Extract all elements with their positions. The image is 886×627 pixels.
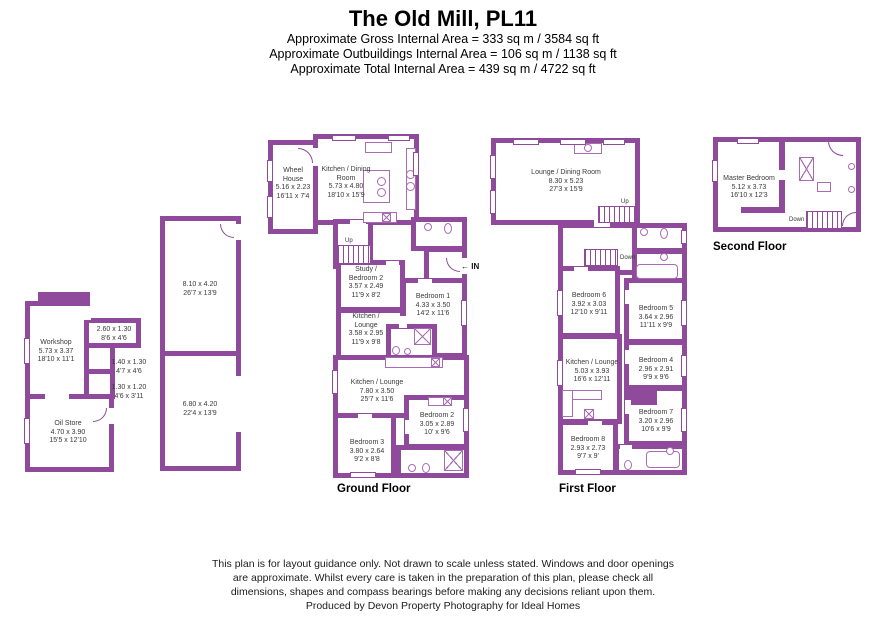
basin-fixture [848,186,855,193]
room-workshop-label: Workshop 5.73 x 3.37 18'10 x 11'1 [30,339,82,365]
outbuildings-area-line: Approximate Outbuildings Internal Area =… [0,47,886,61]
room-bedroom3-label: Bedroom 3 3.80 x 2.64 9'2 x 8'8 [339,439,395,465]
window [490,190,496,214]
stairs-up-label: Up [345,238,353,244]
in-arrow-icon: ← [461,262,469,271]
window [737,138,759,144]
hob-ring-fixture [406,182,415,191]
partition-wall [741,207,785,213]
door-gap [625,290,631,304]
second-floor-title: Second Floor [713,241,786,253]
door-gap [588,421,602,427]
room-oil-store-label: Oil Store 4.70 x 3.90 15'5 x 12'10 [39,420,97,446]
disclaimer-line-2: are approximate. Whilst every care is ta… [0,572,886,584]
window [603,139,625,145]
counter-fixture [562,390,573,417]
room-bedroom1-label: Bedroom 1 4.33 x 3.50 14'2 x 11'6 [405,293,461,319]
credit-line: Produced by Devon Property Photography f… [0,600,886,612]
door-gap [574,267,588,273]
door-gap [107,408,114,424]
window [560,139,586,145]
hob-ring-fixture [377,188,386,197]
door-gap [358,414,372,420]
door-gap [313,148,320,166]
ground-floor-title: Ground Floor [337,483,410,495]
window [681,230,687,244]
ground-wc [411,217,467,251]
stairs-up-ground [337,245,371,264]
room-store-a-label: 2.60 x 1.30 8'6 x 4'6 [87,326,141,343]
room-barn-lower-label: 6.80 x 4.20 22'4 x 13'9 [170,401,230,418]
room-kitchen-lounge-small-label: Kitchen / Lounge 3.58 x 2.95 11'9 x 9'8 [343,313,389,347]
stairs-down-label: Down [789,217,804,223]
window [461,300,467,326]
room-kitchen-dining-label: Kitchen / Dining Room 5.73 x 4.80 18'10 … [317,166,375,200]
toilet-fixture [392,346,400,355]
room-store-c-label: 1.30 x 1.20 4'6 x 3'11 [104,384,154,401]
room-bedroom4-label: Bedroom 4 2.96 x 2.91 9'9 x 9'6 [628,357,684,383]
window [413,152,419,176]
toilet-fixture [624,460,632,470]
shower-fixture [414,328,431,345]
floorplan-page: The Old Mill, PL11 Approximate Gross Int… [0,0,886,627]
sink-fixture [584,409,594,419]
basin-fixture [640,228,648,236]
basin-fixture [660,253,668,261]
shower-fixture [444,450,463,471]
hob-ring-fixture [377,177,386,186]
basin-fixture [408,464,416,472]
sink-fixture [443,397,452,406]
sink-fixture [382,213,391,222]
basin-fixture [424,223,432,231]
sink-fixture [431,358,440,367]
room-kitchen-lounge-large-label: Kitchen / Lounge 7.80 x 3.50 25'7 x 11'6 [339,379,415,405]
toilet-fixture [422,463,430,473]
stairs-down-label: Down [620,255,635,261]
door-gap [418,279,432,285]
disclaimer-line-3: dimensions, shapes and compass bearings … [0,586,886,598]
door-gap [45,394,69,401]
sink-unit-fixture [365,142,392,153]
page-title: The Old Mill, PL11 [0,6,886,32]
disclaimer-line-1: This plan is for layout guidance only. N… [0,558,886,570]
stove-ring-fixture [584,144,592,152]
window [575,469,601,475]
room-master-bedroom-label: Master Bedroom 5.12 x 3.73 16'10 x 12'3 [714,175,784,201]
door-gap [84,306,91,320]
entrance-in-note: ← IN [461,262,479,271]
window [513,139,539,145]
basin-fixture [404,348,411,355]
toilet-fixture [660,228,668,239]
door-gap [234,224,241,240]
stairs-down-second [806,211,842,229]
window [24,418,30,444]
total-area-line: Approximate Total Internal Area = 439 sq… [0,62,886,76]
first-floor-title: First Floor [559,483,616,495]
partition-wall [779,140,785,170]
in-label: IN [471,262,479,271]
room-wheel-house-label: Wheel House 5.16 x 2.23 16'11 x 7'4 [273,167,313,201]
chimney-wall [627,388,657,405]
gross-area-line: Approximate Gross Internal Area = 333 sq… [0,32,886,46]
window [332,135,356,141]
wardrobe-fixture [799,157,814,181]
shelf-fixture [817,182,831,192]
bath-fixture [646,451,680,468]
basin-fixture [848,163,855,170]
window [350,472,376,478]
basin-fixture [666,447,674,455]
window [490,155,496,179]
stairs-up-first [598,206,636,223]
room-bedroom5-label: Bedroom 5 3.64 x 2.96 11'11 x 9'9 [628,305,684,331]
door-gap [234,376,241,432]
window [388,135,410,141]
room-store-b-label: 1.40 x 1.30 4'7 x 4'6 [104,359,154,376]
toilet-fixture [444,223,452,234]
room-study-bedroom2-label: Study / Bedroom 2 3.57 x 2.49 11'9 x 8'2 [341,266,391,300]
room-kitchen-lounge-first-label: Kitchen / Lounge 5.03 x 3.93 16'6 x 12'1… [554,359,630,385]
room-bedroom2-label: Bedroom 2 3.05 x 2.89 10' x 9'6 [409,412,465,438]
window [332,370,338,394]
counter-fixture [363,212,397,223]
room-bedroom7-label: Bedroom 7 3.20 x 2.96 10'6 x 9'9 [628,409,684,435]
bath-fixture [636,264,678,279]
wall-stub [38,292,90,302]
room-lounge-dining-label: Lounge / Dining Room 8.30 x 5.23 27'3 x … [516,169,616,195]
stairs-down-first [584,249,618,266]
room-bedroom6-label: Bedroom 6 3.92 x 3.03 12'10 x 9'11 [561,292,617,318]
door-gap [620,445,632,451]
stairs-up-label: Up [621,199,629,205]
room-barn-upper-label: 8.10 x 4.20 26'7 x 13'9 [170,281,230,298]
room-bedroom8-label: Bedroom 8 2.93 x 2.73 9'7 x 9' [560,436,616,462]
